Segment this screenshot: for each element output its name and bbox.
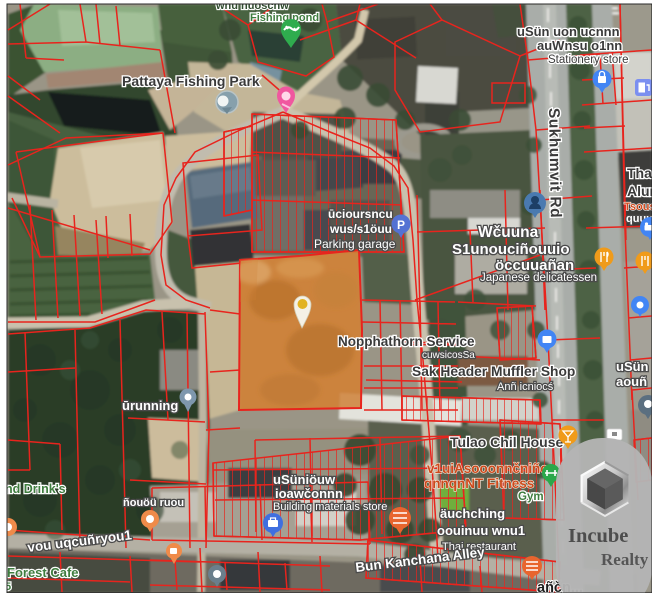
svg-text:Sak Header Muffler Shop: Sak Header Muffler Shop xyxy=(412,364,575,379)
svg-text:ñouöü ruou: ñouöü ruou xyxy=(123,497,184,509)
svg-text:ioawčonnn: ioawčonnn xyxy=(275,486,343,501)
svg-text:S1unouciñouuio: S1unouciñouuio xyxy=(452,241,570,258)
svg-text:ūrunning: ūrunning xyxy=(122,398,178,413)
svg-text:Wčuuna: Wčuuna xyxy=(478,224,539,241)
svg-text:äuchching: äuchching xyxy=(440,506,505,521)
svg-text:Anñ icniocś: Anñ icniocś xyxy=(497,381,554,393)
svg-text:Japanese delicatessen: Japanese delicatessen xyxy=(480,272,597,284)
svg-text:wus/s1öuu: wus/s1öuu xyxy=(329,222,392,236)
svg-text:aouñ: aouñ xyxy=(616,374,647,389)
svg-text:Thai: Thai xyxy=(627,165,656,181)
svg-text:uSün uon ucnnn: uSün uon ucnnn xyxy=(517,24,620,39)
svg-text:Tulao Chil House: Tulao Chil House xyxy=(450,434,564,450)
svg-text:Gym: Gym xyxy=(518,491,544,503)
svg-text:Building materials store: Building materials store xyxy=(273,501,387,513)
svg-text:Sukhumvit Rd: Sukhumvit Rd xyxy=(545,108,564,218)
svg-text:oouinuu wnu1: oouinuu wnu1 xyxy=(437,523,525,538)
svg-text:Forest Cafe: Forest Cafe xyxy=(7,565,79,580)
svg-text:auWnsu o1nn: auWnsu o1nn xyxy=(537,38,622,53)
svg-text:Realty: Realty xyxy=(601,550,649,569)
svg-text:ūcioursncu: ūcioursncu xyxy=(328,207,393,221)
svg-text:Nopphathorn Service: Nopphathorn Service xyxy=(338,334,475,349)
svg-text:P: P xyxy=(397,218,405,232)
svg-text:v1uiAsooonnčniño: v1uiAsooonnčniño xyxy=(427,461,549,476)
svg-text:Parking garage: Parking garage xyxy=(314,237,396,251)
svg-text:qnnqnNT Fitness: qnnqnNT Fitness xyxy=(424,476,534,491)
svg-text:uSüniöuw: uSüniöuw xyxy=(273,472,336,487)
svg-text:nd Drink's: nd Drink's xyxy=(5,482,66,496)
svg-text:Pattaya Fishing Park: Pattaya Fishing Park xyxy=(122,73,260,89)
svg-text:Stationery store: Stationery store xyxy=(548,54,629,66)
svg-text:uSün: uSün xyxy=(616,359,649,374)
svg-text:Incube: Incube xyxy=(568,525,628,547)
svg-text:cuwsicosSa: cuwsicosSa xyxy=(422,350,475,361)
